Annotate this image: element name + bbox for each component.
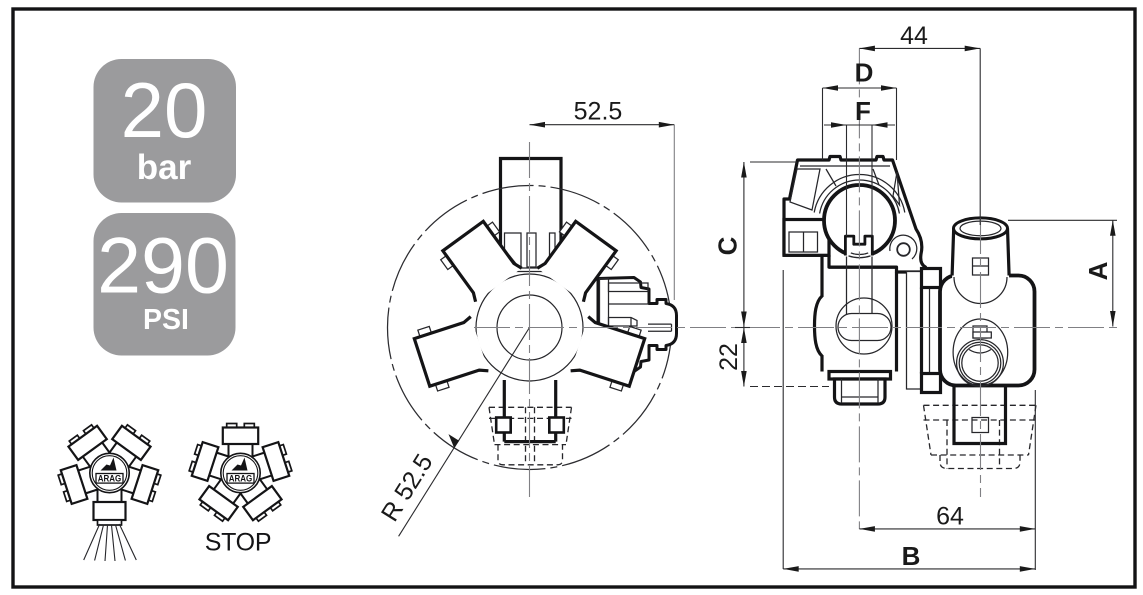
svg-text:C: C <box>713 236 743 255</box>
svg-text:52.5: 52.5 <box>574 98 623 126</box>
svg-text:B: B <box>902 541 921 571</box>
svg-text:STOP: STOP <box>205 529 271 557</box>
svg-text:D: D <box>855 58 874 88</box>
svg-text:64: 64 <box>936 503 964 531</box>
svg-text:F: F <box>855 96 871 126</box>
svg-text:bar: bar <box>137 148 192 187</box>
svg-text:A: A <box>1083 261 1113 280</box>
svg-text:44: 44 <box>900 22 928 50</box>
svg-text:22: 22 <box>715 343 743 371</box>
svg-text:PSI: PSI <box>143 304 189 336</box>
svg-text:20: 20 <box>121 66 208 154</box>
svg-text:290: 290 <box>97 221 229 310</box>
